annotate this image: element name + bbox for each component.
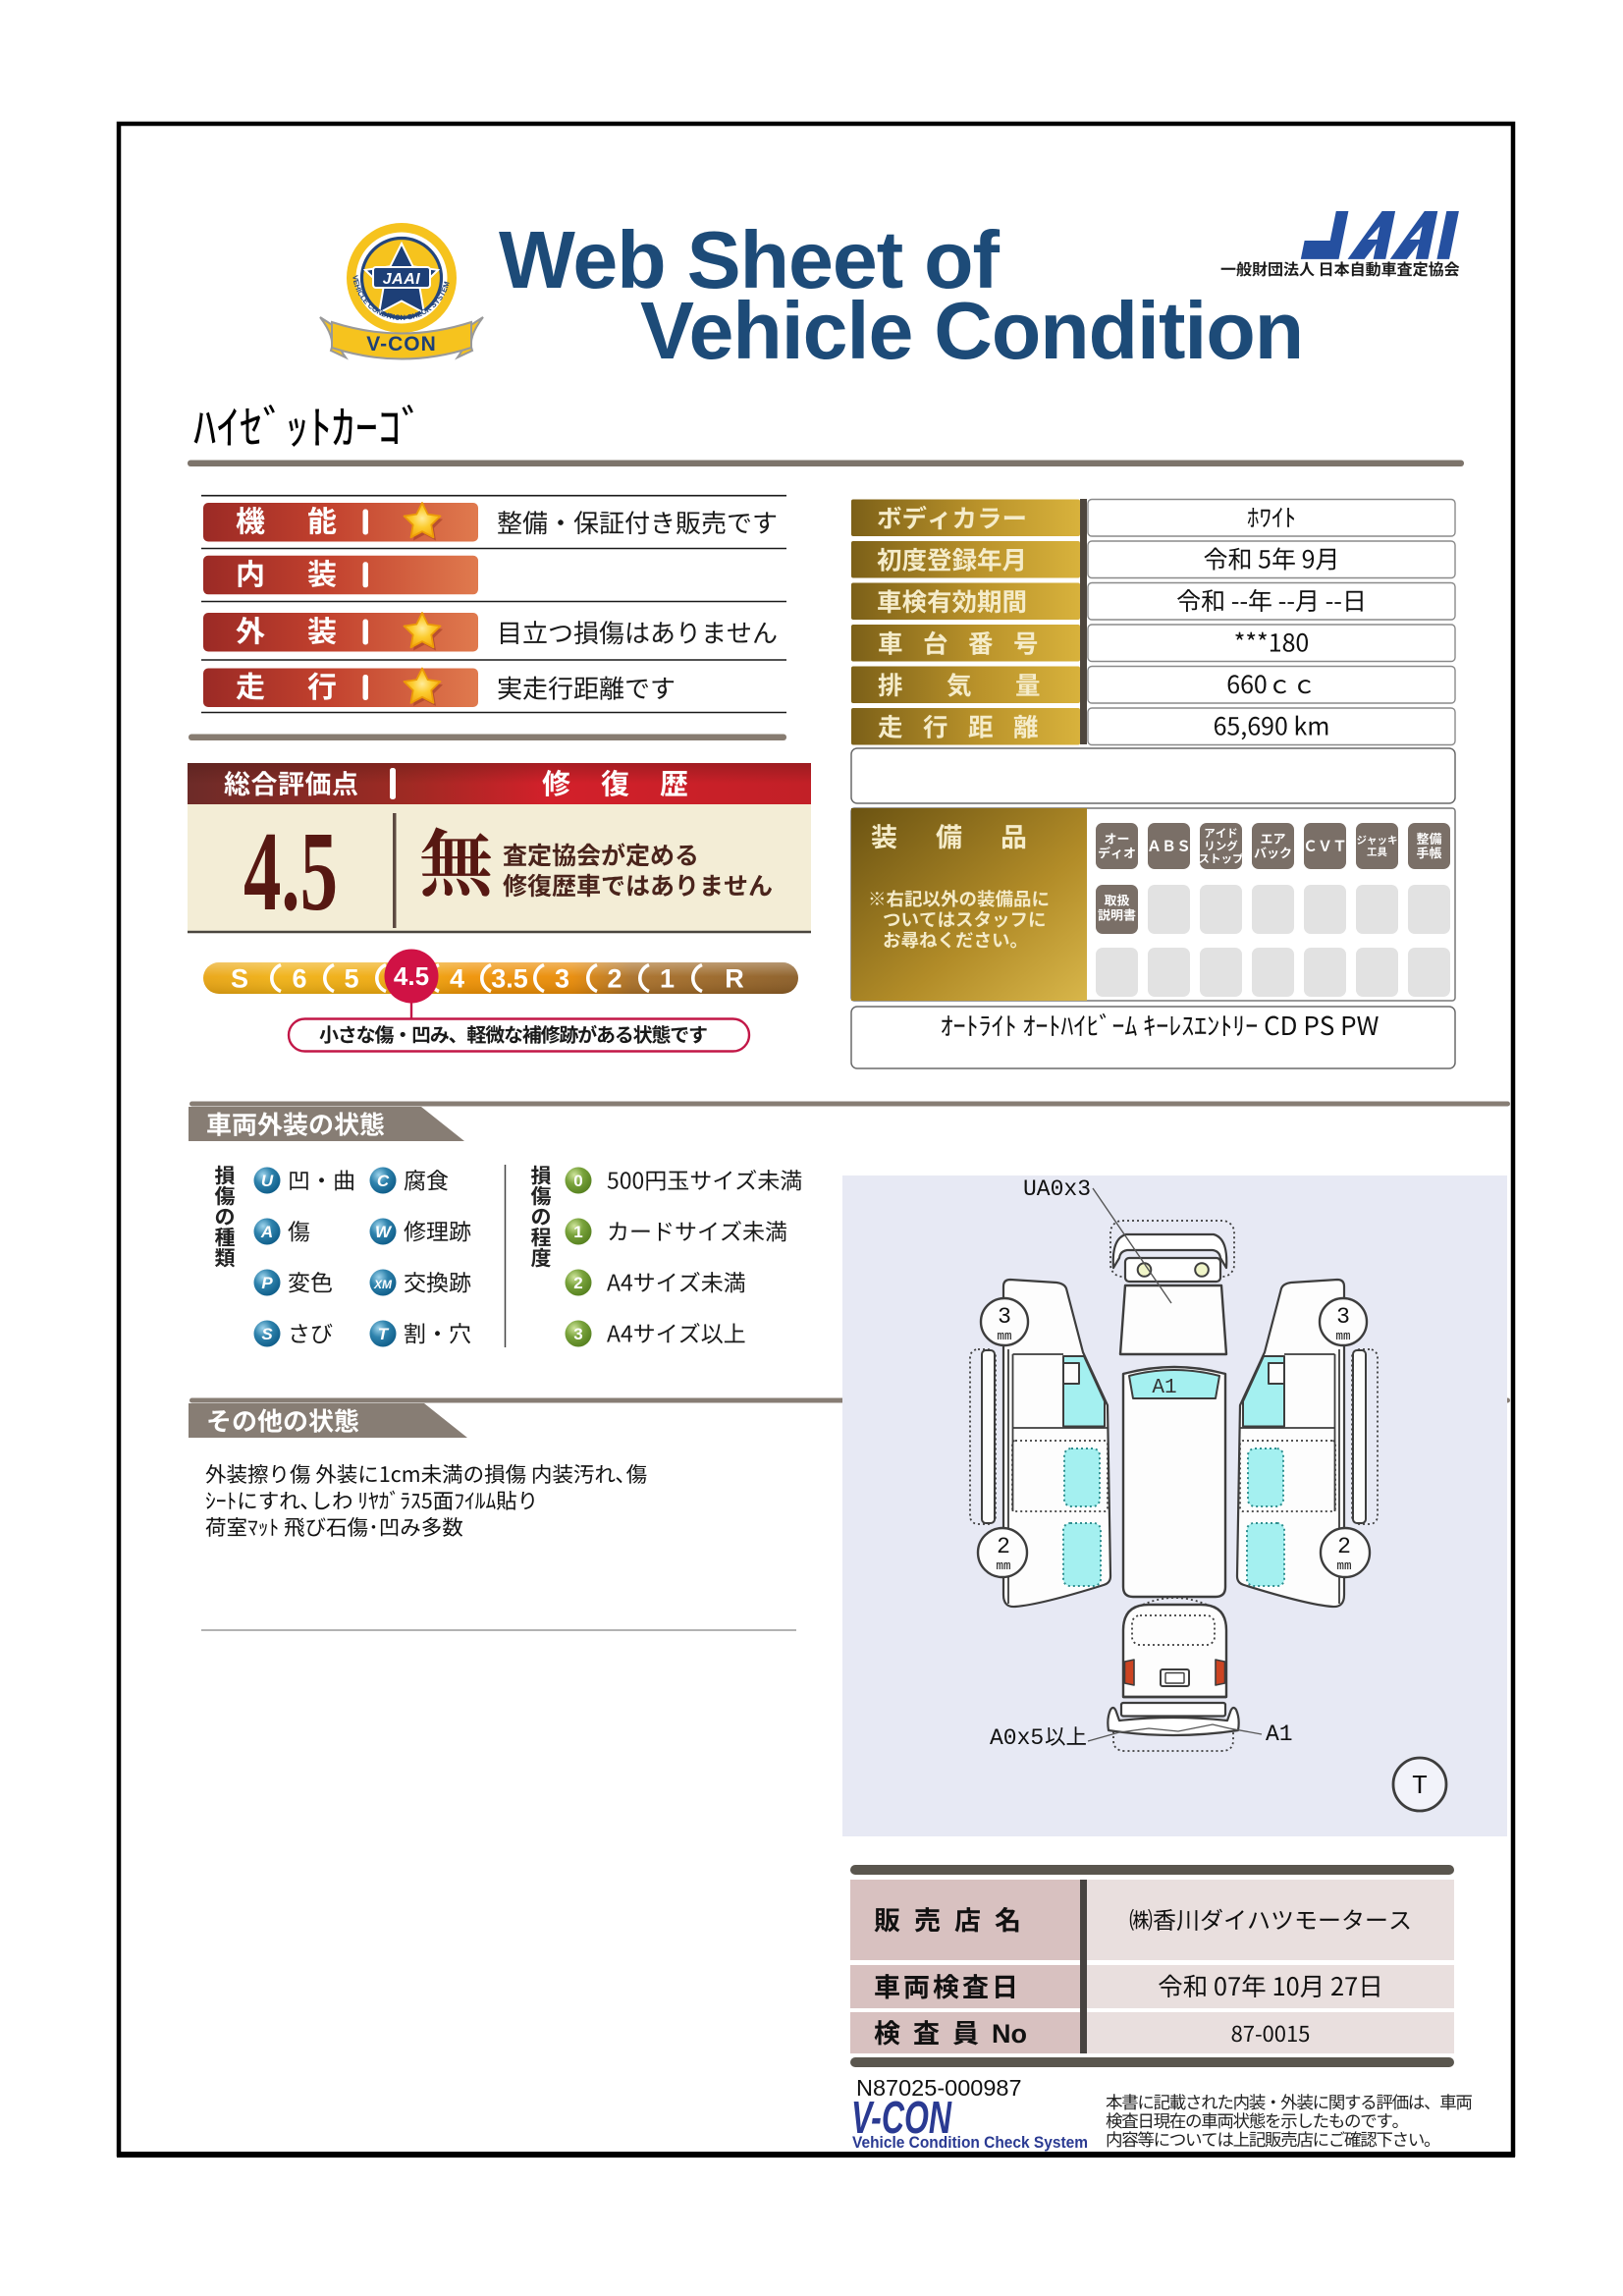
svg-text:2: 2: [1337, 1534, 1351, 1559]
svg-text:mm: mm: [997, 1330, 1011, 1343]
svg-text:3: 3: [1336, 1304, 1350, 1330]
svg-text:V-CON: V-CON: [366, 333, 437, 355]
svg-text:2: 2: [997, 1534, 1010, 1559]
svg-text:JAAI: JAAI: [383, 271, 421, 288]
svg-text:S: S: [231, 964, 248, 994]
svg-text:1: 1: [573, 1223, 582, 1241]
svg-text:T: T: [1412, 1773, 1428, 1802]
svg-text:3: 3: [573, 1325, 582, 1343]
svg-text:0: 0: [573, 1172, 582, 1190]
svg-text:2: 2: [607, 964, 622, 994]
svg-text:3: 3: [998, 1304, 1011, 1330]
svg-text:mm: mm: [1335, 1330, 1350, 1343]
svg-text:A1: A1: [1152, 1377, 1176, 1399]
svg-text:S: S: [261, 1325, 273, 1343]
svg-text:C: C: [377, 1172, 390, 1190]
svg-text:P: P: [261, 1274, 273, 1292]
svg-text:Vehicle Condition Check System: Vehicle Condition Check System: [852, 2133, 1088, 2152]
svg-text:4.5: 4.5: [394, 961, 429, 991]
svg-text:U: U: [261, 1172, 274, 1190]
svg-text:2: 2: [573, 1274, 582, 1292]
svg-text:No: No: [992, 2019, 1027, 2049]
svg-text:A1: A1: [1266, 1722, 1293, 1747]
svg-text:mm: mm: [996, 1559, 1010, 1573]
svg-text:XM: XM: [373, 1278, 393, 1291]
svg-text:R: R: [725, 964, 744, 994]
svg-text:A0x5: A0x5: [990, 1725, 1044, 1751]
svg-text:4.5: 4.5: [243, 809, 338, 934]
svg-text:A: A: [260, 1223, 273, 1241]
svg-text:1: 1: [660, 964, 675, 994]
svg-text:6: 6: [292, 964, 306, 994]
svg-text:3.5: 3.5: [491, 964, 528, 994]
svg-text:UA0x3: UA0x3: [1023, 1176, 1091, 1202]
svg-text:T: T: [378, 1325, 390, 1343]
svg-text:5: 5: [344, 964, 358, 994]
svg-text:mm: mm: [1336, 1559, 1351, 1573]
svg-text:4: 4: [450, 964, 464, 994]
svg-text:W: W: [375, 1223, 393, 1241]
svg-text:Vehicle Condition: Vehicle Condition: [640, 286, 1303, 376]
svg-text:3: 3: [555, 964, 569, 994]
